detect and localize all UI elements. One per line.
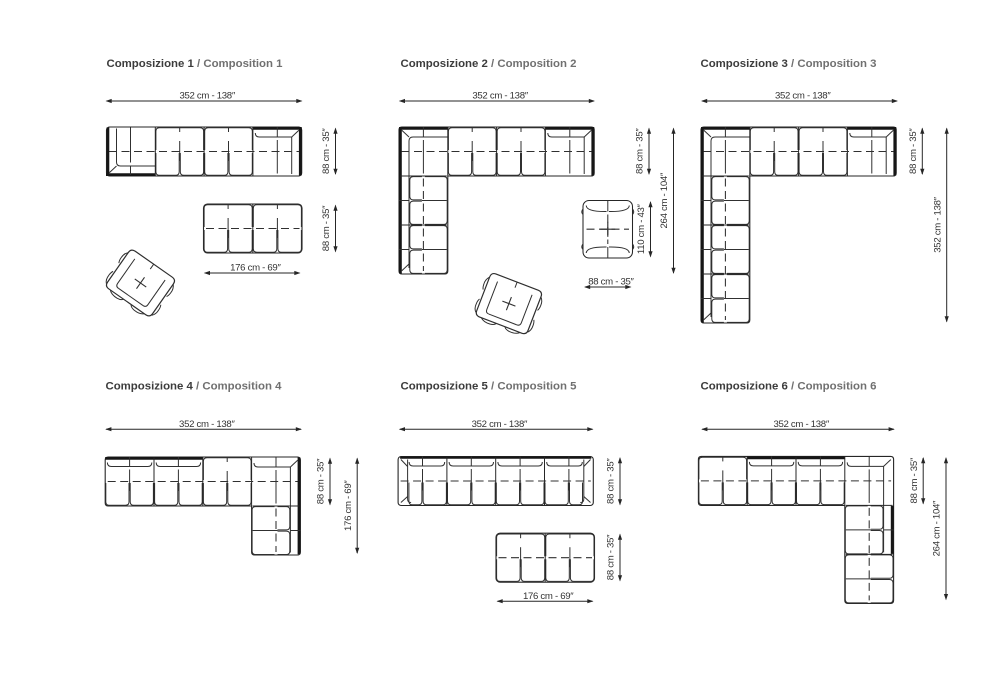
svg-text:88 cm - 35″: 88 cm - 35″	[909, 457, 920, 503]
svg-text:176 cm - 69″: 176 cm - 69″	[523, 591, 574, 602]
svg-text:264 cm - 104″: 264 cm - 104″	[932, 500, 943, 556]
svg-text:110 cm - 43″: 110 cm - 43″	[636, 203, 647, 254]
svg-text:Composizione 4 / Composition 4: Composizione 4 / Composition 4	[106, 381, 283, 393]
svg-text:88 cm - 35″: 88 cm - 35″	[635, 128, 646, 174]
svg-text:352 cm - 138″: 352 cm - 138″	[773, 419, 829, 430]
svg-text:Composizione 3 / Composition 3: Composizione 3 / Composition 3	[701, 58, 877, 70]
svg-text:88 cm - 35″: 88 cm - 35″	[316, 458, 327, 504]
svg-text:352 cm - 138″: 352 cm - 138″	[179, 419, 235, 430]
svg-text:88 cm - 35″: 88 cm - 35″	[606, 534, 617, 580]
svg-text:88 cm - 35″: 88 cm - 35″	[908, 128, 919, 174]
svg-text:88 cm - 35″: 88 cm - 35″	[321, 205, 332, 251]
svg-text:352 cm - 138″: 352 cm - 138″	[775, 91, 831, 102]
svg-text:Composizione 2 / Composition 2: Composizione 2 / Composition 2	[401, 58, 577, 70]
svg-text:88 cm - 35″: 88 cm - 35″	[321, 128, 332, 174]
svg-text:176 cm - 69″: 176 cm - 69″	[343, 480, 354, 531]
svg-text:Composizione 6 / Composition 6: Composizione 6 / Composition 6	[701, 381, 877, 393]
svg-text:352 cm - 138″: 352 cm - 138″	[472, 419, 528, 430]
svg-text:176 cm - 69″: 176 cm - 69″	[230, 263, 281, 274]
svg-text:88 cm - 35″: 88 cm - 35″	[606, 458, 617, 504]
svg-text:352 cm - 138″: 352 cm - 138″	[932, 196, 943, 252]
svg-text:352 cm - 138″: 352 cm - 138″	[472, 91, 528, 102]
svg-text:352 cm - 138″: 352 cm - 138″	[179, 91, 235, 102]
svg-text:Composizione 5 / Composition 5: Composizione 5 / Composition 5	[401, 381, 578, 393]
svg-text:Composizione 1 / Composition 1: Composizione 1 / Composition 1	[107, 58, 284, 70]
svg-text:264 cm - 104″: 264 cm - 104″	[659, 172, 670, 228]
